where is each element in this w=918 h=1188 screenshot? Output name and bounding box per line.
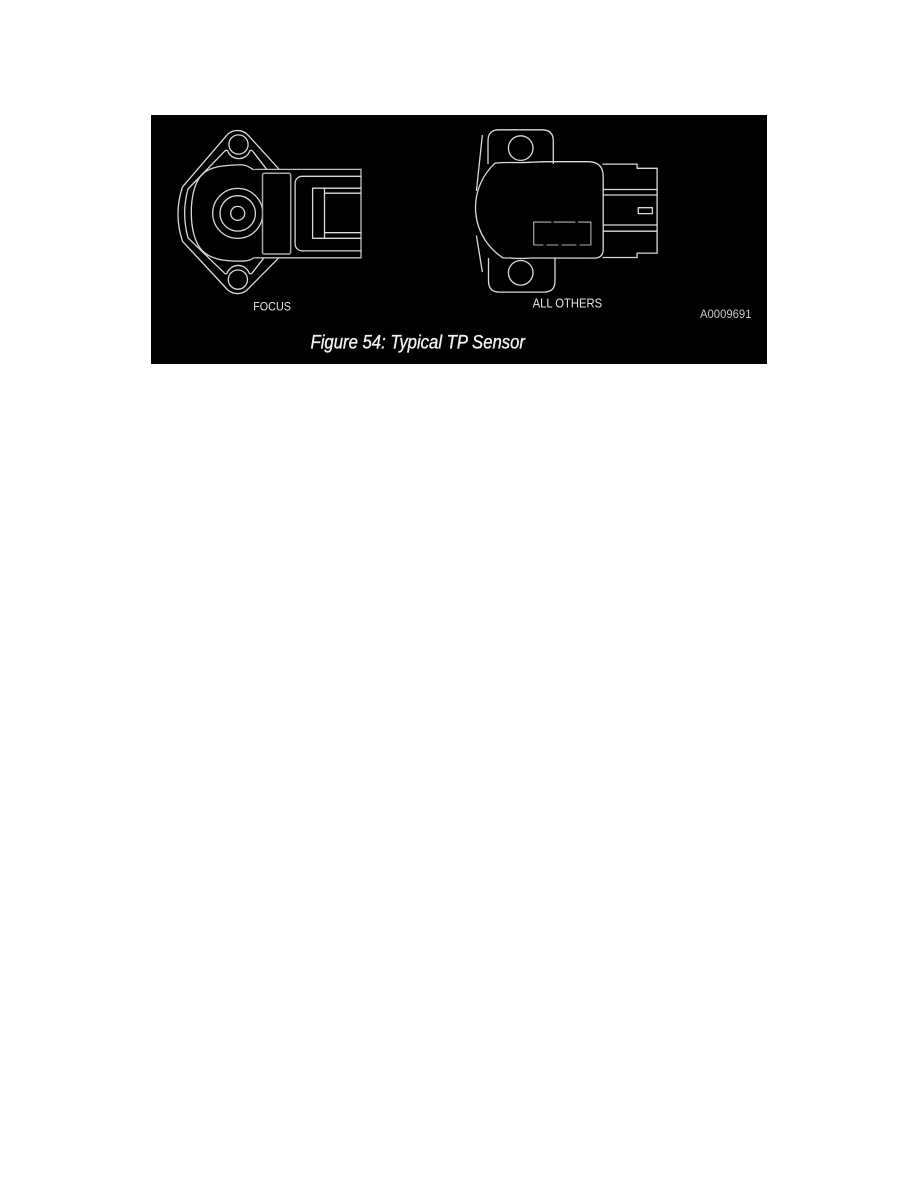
svg-text:ALL OTHERS: ALL OTHERS <box>533 296 603 310</box>
svg-text:Figure 54: Typical TP Sensor: Figure 54: Typical TP Sensor <box>311 333 526 354</box>
svg-text:A0009691: A0009691 <box>700 307 752 321</box>
svg-text:FOCUS: FOCUS <box>253 299 291 313</box>
